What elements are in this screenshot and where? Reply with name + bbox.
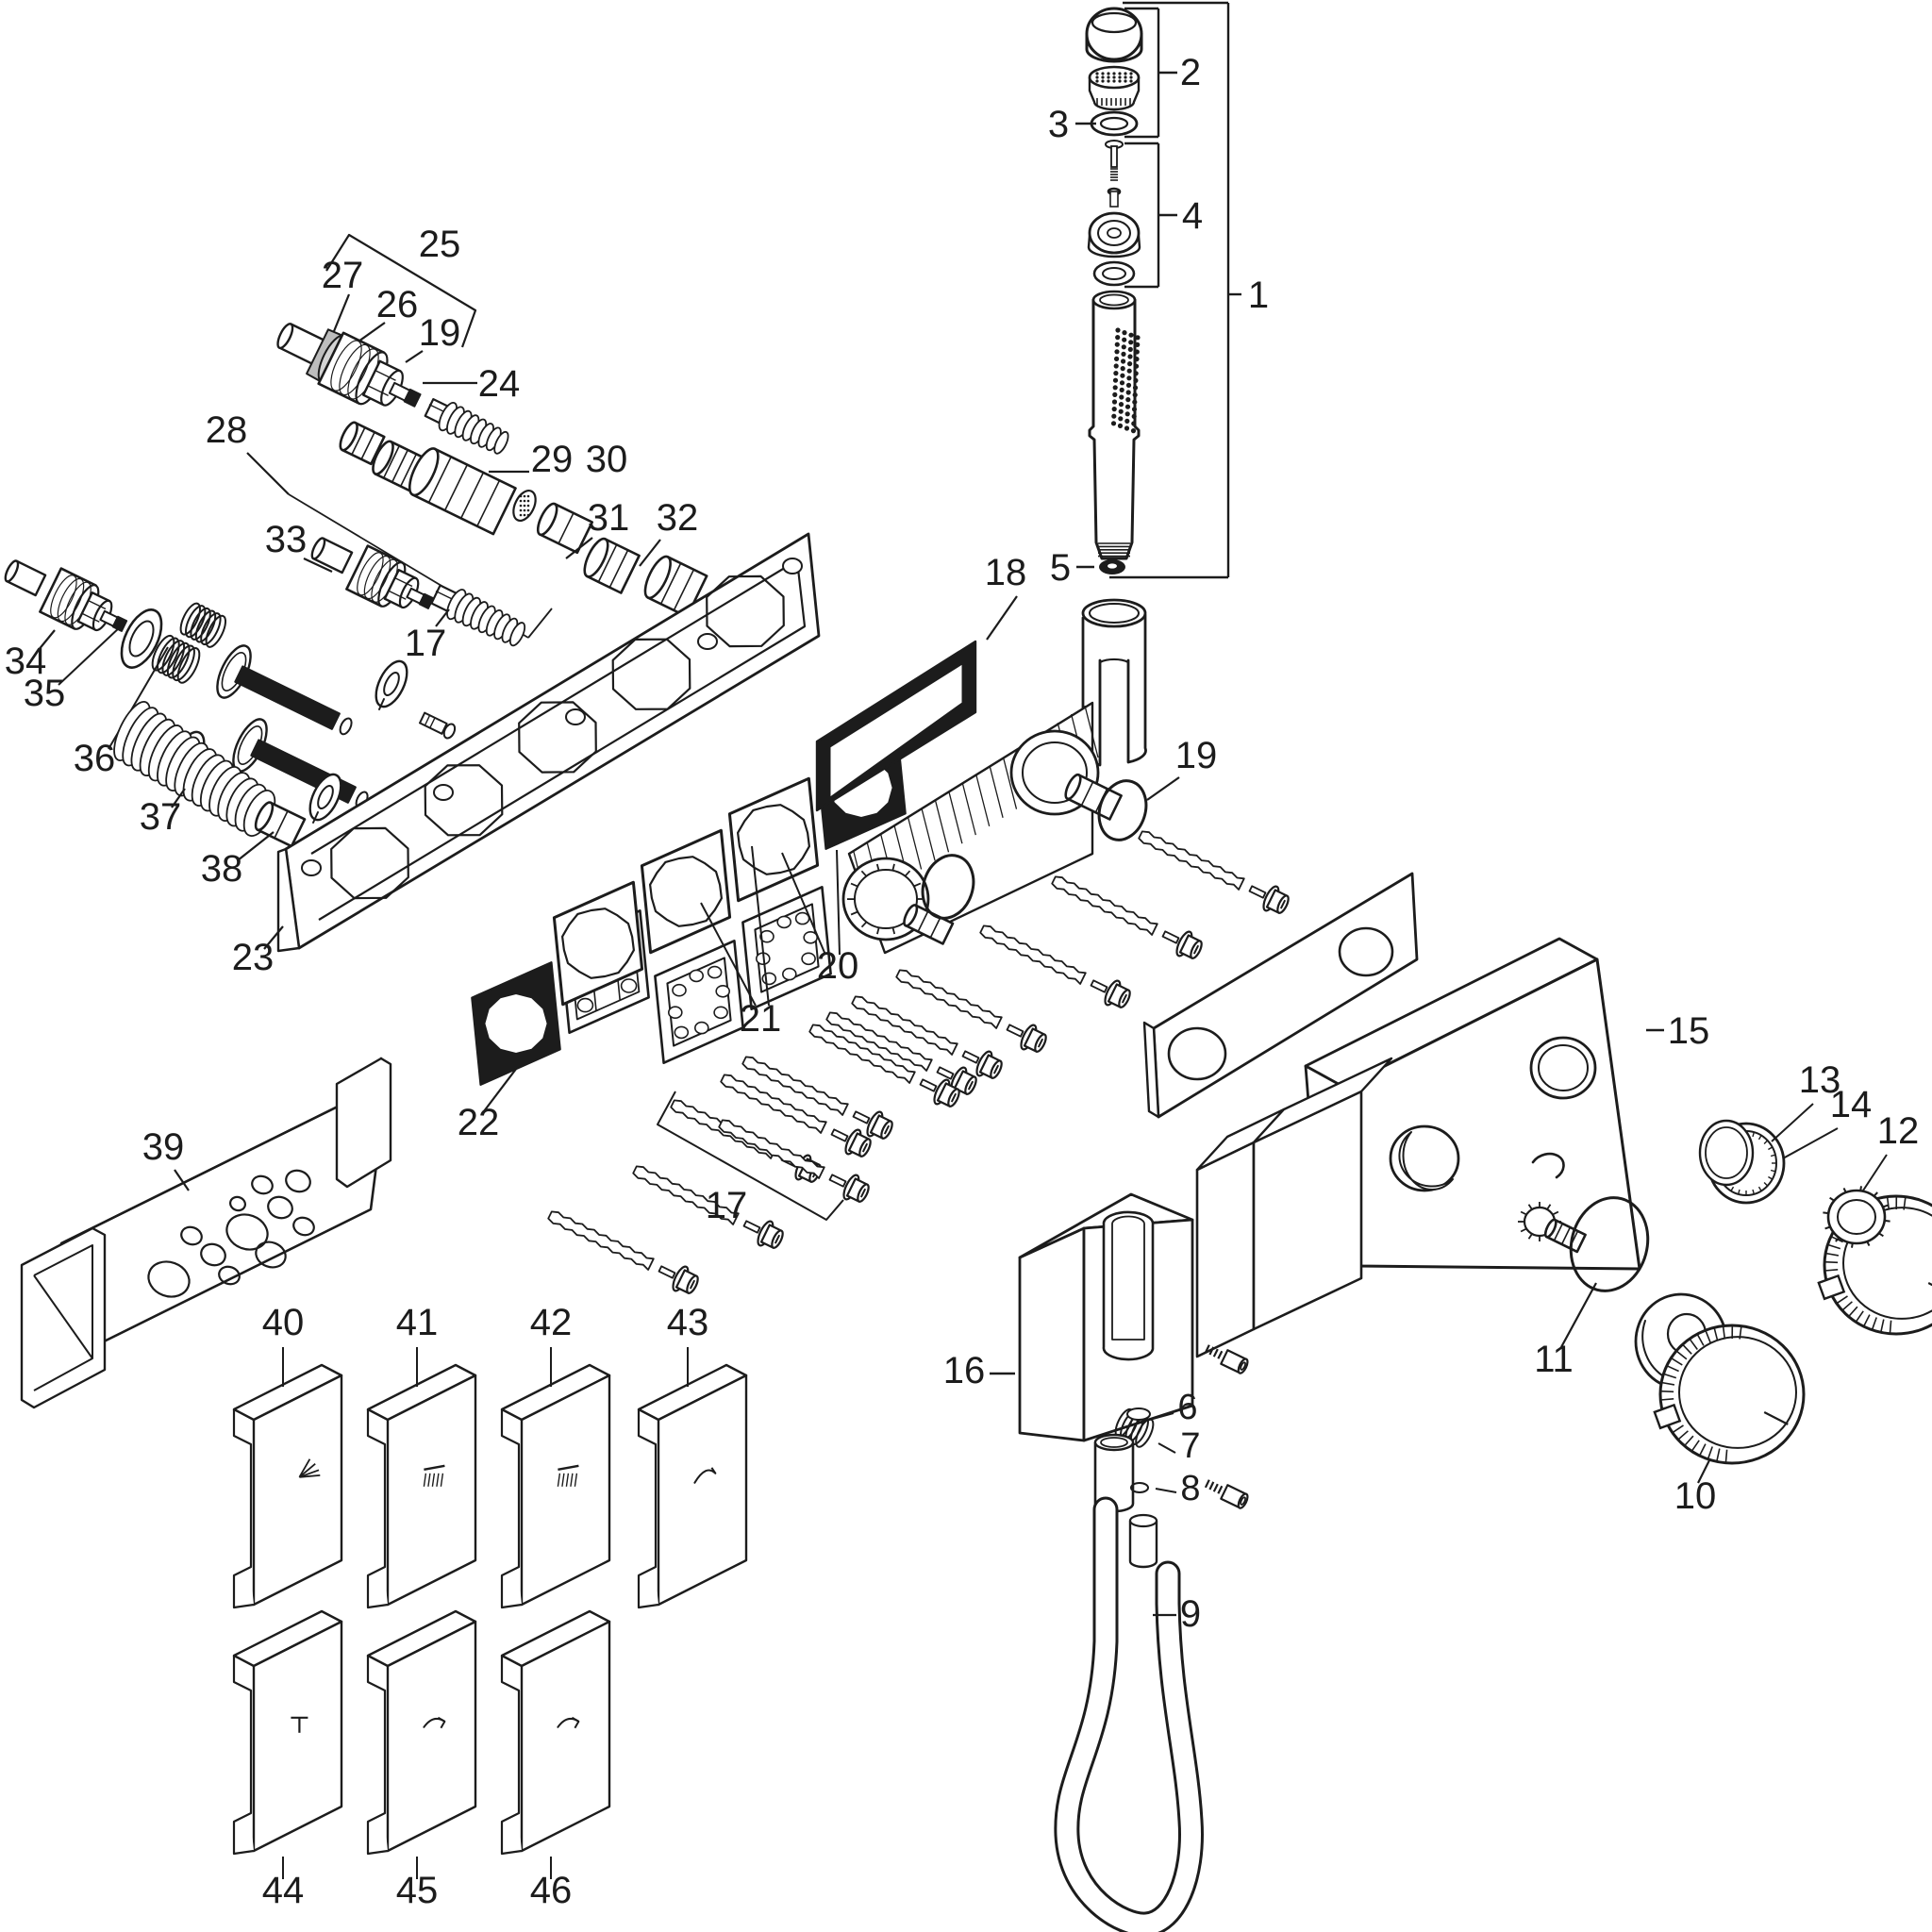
svg-text:38: 38 [201, 848, 243, 890]
svg-text:17: 17 [706, 1185, 748, 1226]
svg-text:23: 23 [232, 937, 275, 978]
svg-text:31: 31 [588, 497, 630, 539]
svg-text:26: 26 [376, 284, 419, 325]
svg-text:4: 4 [1182, 195, 1203, 237]
svg-text:19: 19 [1175, 735, 1218, 776]
svg-text:24: 24 [478, 363, 521, 405]
svg-text:40: 40 [262, 1302, 305, 1343]
svg-text:30: 30 [586, 439, 628, 480]
svg-text:42: 42 [530, 1302, 573, 1343]
svg-text:29: 29 [531, 439, 574, 480]
svg-text:22: 22 [458, 1102, 500, 1143]
svg-text:8: 8 [1180, 1469, 1200, 1508]
svg-text:1: 1 [1248, 275, 1269, 316]
svg-text:25: 25 [419, 224, 461, 265]
svg-text:32: 32 [657, 497, 699, 539]
svg-text:3: 3 [1048, 104, 1069, 145]
svg-text:17: 17 [405, 623, 447, 664]
svg-text:41: 41 [396, 1302, 439, 1343]
svg-text:39: 39 [142, 1126, 185, 1168]
svg-text:35: 35 [24, 673, 66, 714]
svg-text:5: 5 [1050, 547, 1071, 589]
svg-text:7: 7 [1180, 1426, 1200, 1466]
svg-text:12: 12 [1877, 1110, 1920, 1152]
svg-text:43: 43 [667, 1302, 709, 1343]
svg-text:21: 21 [740, 998, 782, 1040]
svg-text:28: 28 [206, 409, 248, 451]
svg-text:36: 36 [74, 738, 116, 779]
svg-text:33: 33 [265, 519, 308, 560]
svg-text:19: 19 [419, 312, 461, 354]
svg-text:15: 15 [1668, 1010, 1710, 1052]
svg-text:16: 16 [943, 1350, 986, 1391]
svg-text:27: 27 [322, 255, 364, 296]
svg-text:9: 9 [1180, 1593, 1201, 1635]
svg-text:14: 14 [1830, 1084, 1873, 1125]
svg-text:2: 2 [1180, 52, 1201, 93]
svg-text:18: 18 [985, 552, 1027, 593]
svg-text:10: 10 [1674, 1475, 1717, 1517]
svg-text:6: 6 [1177, 1388, 1197, 1427]
svg-text:11: 11 [1534, 1339, 1574, 1380]
svg-text:20: 20 [817, 945, 859, 987]
